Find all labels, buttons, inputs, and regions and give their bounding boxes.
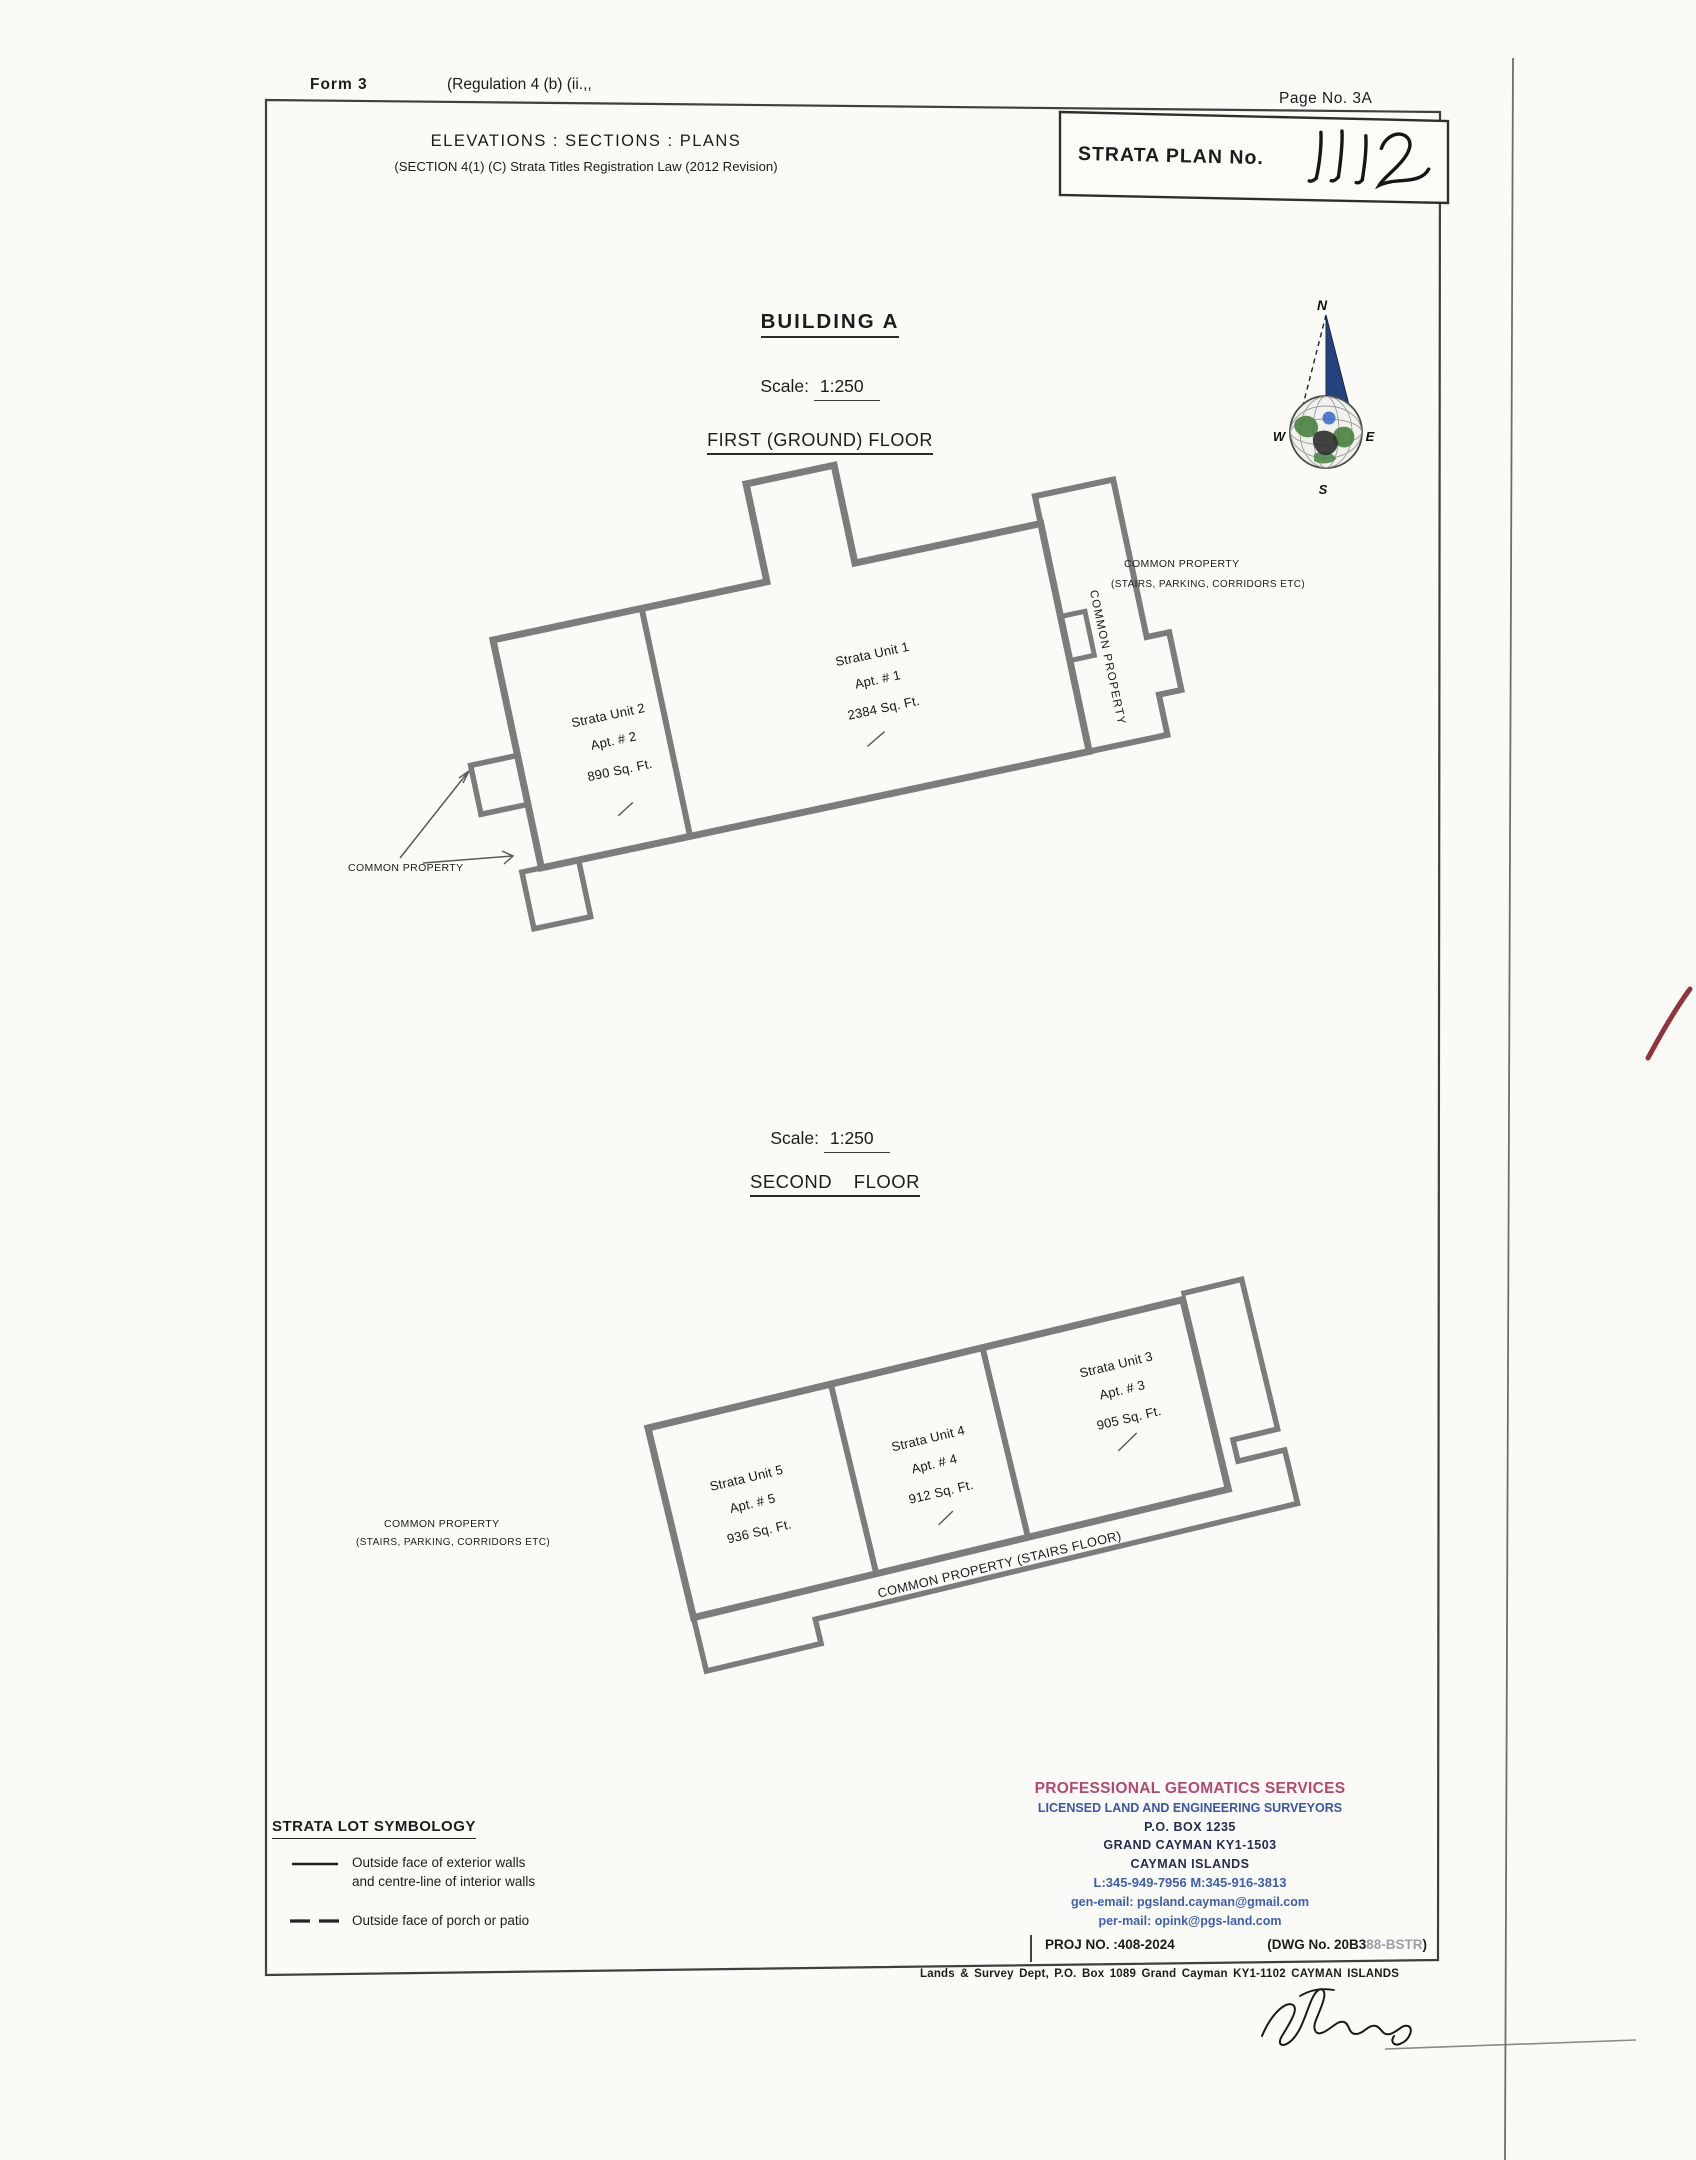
- unit3-survey-tick: [1115, 1433, 1139, 1451]
- floor1-porch-lower: [522, 860, 591, 929]
- unit5-area: 936 Sq. Ft.: [725, 1516, 792, 1546]
- legend-item-walls-line1: Outside face of exterior walls: [352, 1854, 535, 1873]
- scanned-strata-plan-page: { "page": { "form_label": "Form 3", "reg…: [0, 0, 1696, 2160]
- floor1-right-note-line1: COMMON PROPERTY: [1124, 558, 1239, 570]
- floor2-left-note-line2: (STAIRS, PARKING, CORRIDORS ETC): [356, 1537, 550, 1548]
- floor1-exterior-walls: [472, 426, 1089, 868]
- floor1-scale-value: 1:250: [814, 376, 880, 401]
- legend-item-porch-line1: Outside face of porch or patio: [352, 1913, 529, 1928]
- unit4-area: 912 Sq. Ft.: [907, 1477, 974, 1507]
- unit3-area: 905 Sq. Ft.: [1095, 1403, 1162, 1433]
- surveyor-city: GRAND CAYMAN KY1-1503: [1022, 1836, 1358, 1855]
- floor2-left-note-line1: COMMON PROPERTY: [384, 1518, 499, 1530]
- unit4-apt: Apt. # 4: [910, 1451, 959, 1476]
- floor1-porch-note: COMMON PROPERTY: [348, 862, 463, 874]
- surveyor-gen-email: gen-email: pgsland.cayman@gmail.com: [1022, 1893, 1358, 1912]
- project-number-row: PROJ NO. :408-2024 (DWG No. 20B388-BSTR): [1045, 1937, 1427, 1952]
- unit1-apt: Apt. # 1: [853, 667, 902, 691]
- floor2-title: SECOND FLOOR: [690, 1171, 980, 1197]
- lands-dept-footer: Lands & Survey Dept, P.O. Box 1089 Grand…: [920, 1968, 1399, 1980]
- unit4-name: Strata Unit 4: [890, 1422, 966, 1454]
- compass-east-label: E: [1366, 429, 1375, 444]
- floor2-right-strip: [1181, 1279, 1297, 1519]
- building-title-text: BUILDING A: [761, 310, 900, 338]
- compass-north-label: N: [1317, 297, 1328, 313]
- floor2-scale-label: Scale:: [770, 1128, 819, 1148]
- unit2-survey-tick: [616, 802, 635, 815]
- surveyor-tagline: LICENSED LAND AND ENGINEERING SURVEYORS: [1022, 1799, 1358, 1818]
- building-title: BUILDING A: [680, 310, 980, 338]
- red-pen-tick: [1648, 989, 1690, 1058]
- surveyor-per-email: per-mail: opink@pgs-land.com: [1022, 1912, 1358, 1931]
- floor2-interior-wall-a: [832, 1387, 876, 1571]
- legend-title: STRATA LOT SYMBOLOGY: [272, 1818, 476, 1839]
- scan-edge-line: [1505, 58, 1513, 2160]
- header-subtitle: (SECTION 4(1) (C) Strata Titles Registra…: [336, 159, 836, 174]
- legend-item-walls-line2: and centre-line of interior walls: [352, 1873, 535, 1892]
- floor1-porch-leaders: [400, 771, 513, 864]
- signature-scribble: [1262, 1989, 1411, 2045]
- floor1-title-text: FIRST (GROUND) FLOOR: [707, 430, 933, 455]
- form-label: Form 3: [310, 76, 368, 94]
- floor1-porch-upper: [471, 755, 528, 814]
- floor2-title-text: SECOND FLOOR: [750, 1171, 920, 1197]
- floor2-scale-value: 1:250: [824, 1128, 890, 1153]
- compass-south-label: S: [1319, 482, 1328, 497]
- first-floor-plan: Strata Unit 1 Apt. # 1 2384 Sq. Ft. Stra…: [425, 404, 1202, 934]
- surveyor-block: PROFESSIONAL GEOMATICS SERVICES LICENSED…: [1022, 1780, 1358, 1930]
- floor1-scale-label: Scale:: [760, 376, 809, 396]
- surveyor-po-box: P.O. BOX 1235: [1022, 1818, 1358, 1837]
- compass-west-label: W: [1273, 429, 1287, 444]
- unit5-name: Strata Unit 5: [708, 1462, 784, 1494]
- unit1-survey-tick: [865, 732, 887, 747]
- floor2-interior-wall-b: [983, 1351, 1027, 1535]
- floor1-right-note-line2: (STAIRS, PARKING, CORRIDORS ETC): [1111, 579, 1305, 590]
- unit3-name: Strata Unit 3: [1078, 1348, 1154, 1380]
- drawing-number-faded: 88-BSTR: [1366, 1937, 1422, 1952]
- unit2-name: Strata Unit 2: [570, 700, 646, 730]
- surveyor-name: PROFESSIONAL GEOMATICS SERVICES: [1022, 1780, 1358, 1799]
- floor2-scale: Scale: 1:250: [690, 1128, 970, 1153]
- regulation-label: (Regulation 4 (b) (ii.,,: [447, 76, 592, 94]
- legend-item-porch: Outside face of porch or patio: [352, 1913, 529, 1928]
- floor1-interior-wall: [642, 611, 689, 833]
- project-number: PROJ NO. :408-2024: [1045, 1937, 1175, 1952]
- compass-rose-icon: N W E S: [1273, 297, 1375, 497]
- page-number: Page No. 3A: [1279, 90, 1372, 108]
- second-floor-plan: Strata Unit 3 Apt. # 3 905 Sq. Ft. Strat…: [647, 1279, 1304, 1671]
- unit4-survey-tick: [936, 1511, 955, 1525]
- surveyor-country: CAYMAN ISLANDS: [1022, 1855, 1358, 1874]
- unit1-area: 2384 Sq. Ft.: [846, 693, 921, 723]
- legend: STRATA LOT SYMBOLOGY: [272, 1818, 476, 1839]
- floor1-scale: Scale: 1:250: [680, 376, 960, 401]
- drawing-number: (DWG No. 20B388-BSTR): [1267, 1937, 1427, 1952]
- north-arrow-fill-icon: [1326, 315, 1349, 405]
- unit3-apt: Apt. # 3: [1098, 1377, 1147, 1402]
- globe-icon: [1290, 396, 1362, 468]
- header-title: ELEVATIONS : SECTIONS : PLANS: [336, 132, 836, 151]
- unit1-name: Strata Unit 1: [834, 639, 910, 669]
- floor2-stairs-corridor: [694, 1489, 1242, 1671]
- strata-plan-label: STRATA PLAN No.: [1078, 143, 1264, 170]
- unit2-area: 890 Sq. Ft.: [586, 756, 653, 784]
- signature-underline: [1385, 2040, 1636, 2049]
- surveyor-phones: L:345-949-7956 M:345-916-3813: [1022, 1874, 1358, 1893]
- unit5-apt: Apt. # 5: [728, 1490, 777, 1515]
- floor1-title: FIRST (GROUND) FLOOR: [650, 430, 990, 455]
- legend-item-walls: Outside face of exterior walls and centr…: [352, 1854, 535, 1891]
- north-arrow-dashed-edge-icon: [1303, 315, 1326, 405]
- unit2-apt: Apt. # 2: [589, 728, 638, 752]
